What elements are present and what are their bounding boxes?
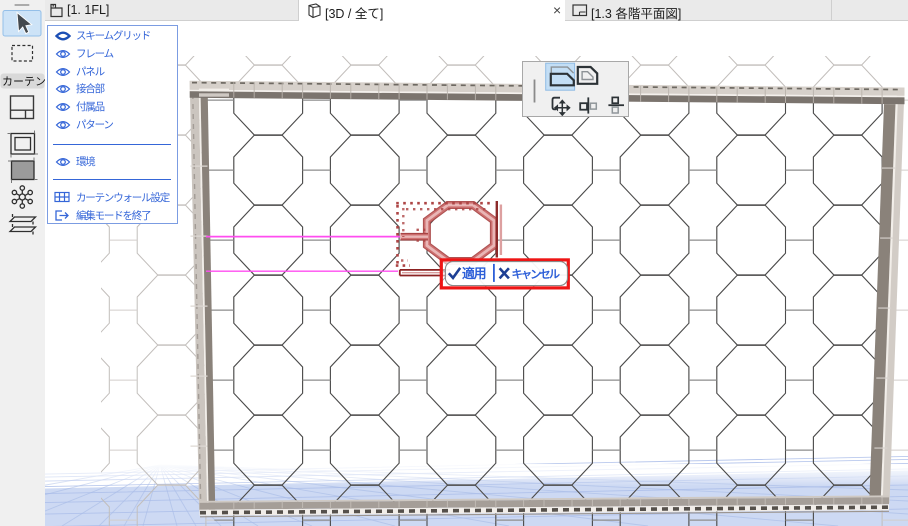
svg-text:カーテン': カーテン' [2,75,45,88]
svg-text:適用: 適用 [462,266,486,281]
svg-text:キャンセル: キャンセル [512,268,561,281]
